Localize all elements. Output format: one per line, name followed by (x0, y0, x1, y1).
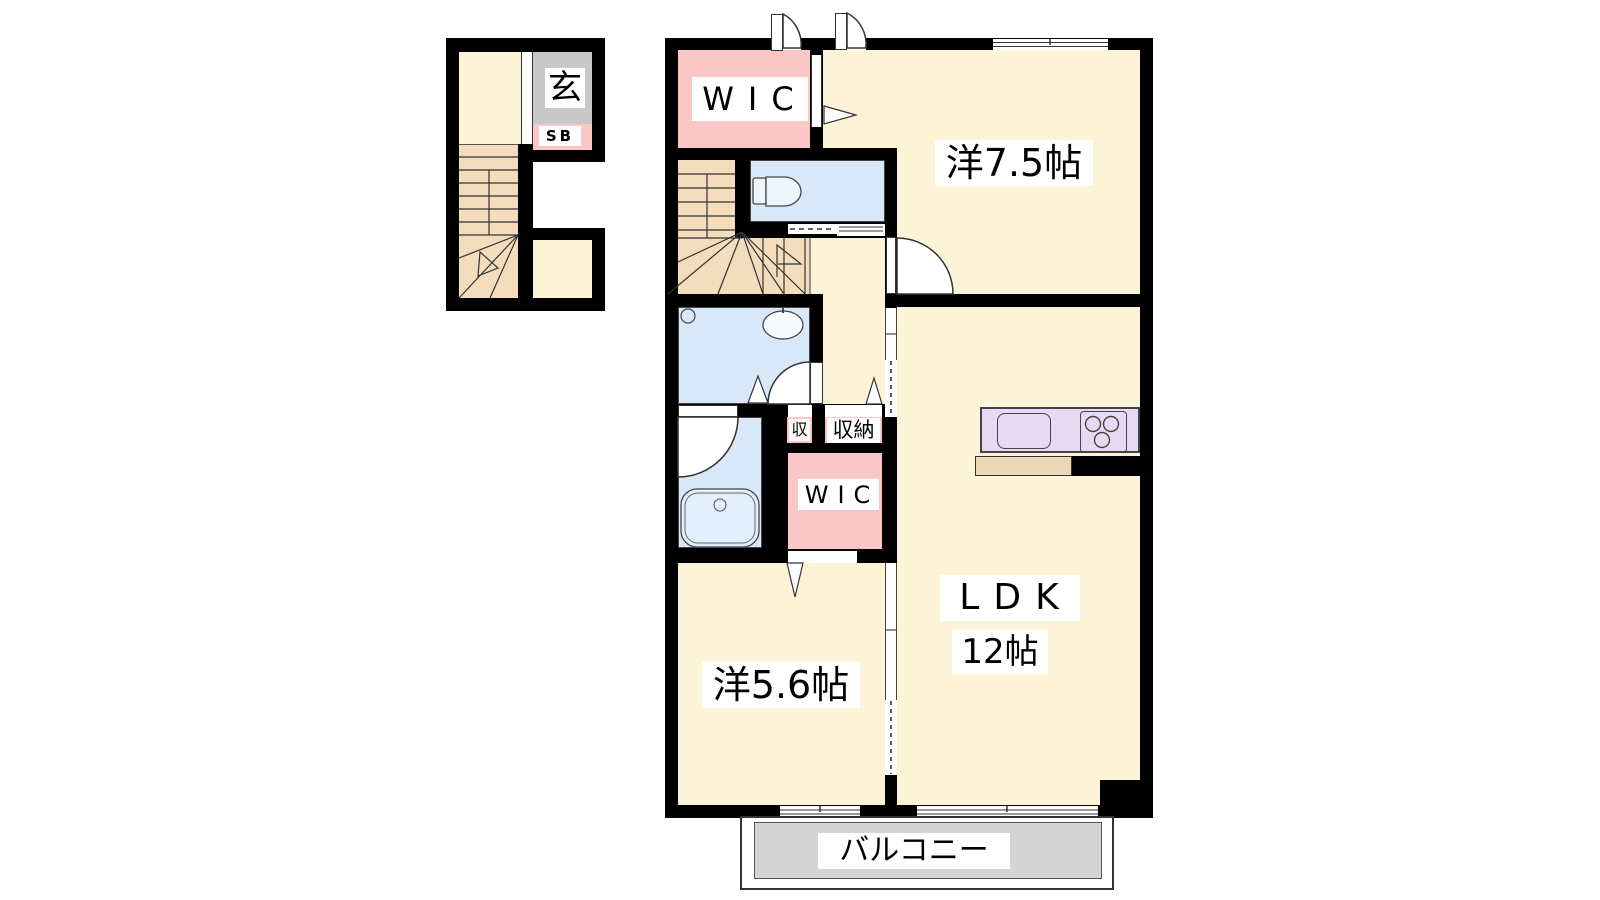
wic-lower-door-marker (787, 563, 803, 597)
washroom-sink (763, 311, 803, 339)
washer-drain (681, 309, 695, 323)
wic-upper-door-marker (824, 106, 856, 124)
exterior-door-arc-1 (783, 14, 801, 48)
room-large-door-arc (897, 238, 953, 294)
sliding-door-dashes (790, 229, 897, 774)
stove-burner-1 (1086, 417, 1101, 432)
window-glazing (780, 39, 1108, 814)
stairwell-stair-treads (459, 157, 518, 298)
bathroom-door-arc (678, 417, 738, 477)
laundry-door-marker (748, 376, 768, 403)
floor-plan-canvas: 玄 SB (0, 0, 1600, 900)
storage-door-marker (866, 378, 882, 404)
exterior-door-arc-2 (847, 13, 866, 48)
detail-overlay (0, 0, 1600, 900)
stove-burner-2 (1104, 417, 1119, 432)
door-swing-arcs (678, 13, 953, 477)
bathtub (681, 489, 759, 547)
fixtures (681, 177, 1119, 547)
toilet-bowl (766, 177, 801, 206)
toilet-tank (753, 178, 766, 204)
washroom-door-arc (768, 362, 810, 404)
stove-burner-3 (1095, 433, 1110, 448)
